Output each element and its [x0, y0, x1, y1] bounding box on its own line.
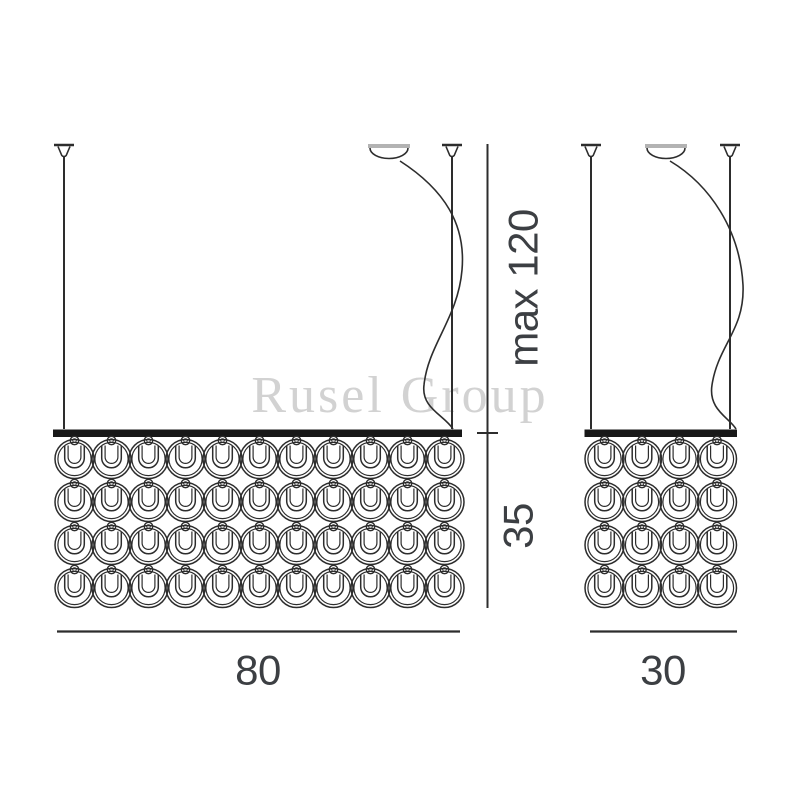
glass-sphere-icon: [55, 522, 94, 564]
glass-sphere-icon: [92, 565, 131, 607]
glass-sphere-icon: [240, 479, 279, 521]
glass-sphere-icon: [698, 565, 737, 607]
ceiling-mount-icon: [442, 145, 462, 157]
glass-sphere-icon: [623, 436, 662, 478]
ceiling-canopy-icon: [368, 146, 410, 159]
fixture-top-bar: [585, 430, 738, 438]
ceiling-mount-icon: [720, 145, 740, 157]
glass-sphere-icon: [660, 436, 699, 478]
glass-sphere-icon: [55, 436, 94, 478]
product-dimension-diagram: Rusel Group: [0, 0, 800, 800]
glass-sphere-icon: [277, 479, 316, 521]
glass-sphere-icon: [203, 522, 242, 564]
glass-sphere-icon: [240, 565, 279, 607]
glass-sphere-icon: [129, 479, 168, 521]
glass-sphere-icon: [129, 436, 168, 478]
glass-sphere-icon: [585, 522, 624, 564]
dimension-label-width-small: 30: [640, 647, 686, 694]
glass-sphere-icon: [351, 565, 390, 607]
glass-sphere-icon: [203, 479, 242, 521]
glass-sphere-icon: [388, 565, 427, 607]
glass-sphere-icon: [585, 479, 624, 521]
glass-sphere-icon: [698, 436, 737, 478]
glass-sphere-icon: [240, 436, 279, 478]
glass-sphere-icon: [425, 522, 464, 564]
glass-sphere-icon: [351, 436, 390, 478]
glass-sphere-icon: [623, 522, 662, 564]
glass-sphere-icon: [585, 565, 624, 607]
glass-sphere-icon: [351, 479, 390, 521]
glass-sphere-icon: [314, 522, 353, 564]
dimension-label-body-height: 35: [495, 503, 542, 549]
glass-sphere-icon: [203, 436, 242, 478]
glass-sphere-icon: [698, 522, 737, 564]
glass-sphere-icon: [277, 436, 316, 478]
ceiling-mount-icon: [54, 145, 74, 157]
glass-sphere-icon: [129, 565, 168, 607]
sphere-grid-small: [585, 436, 737, 607]
glass-sphere-icon: [166, 436, 205, 478]
dimension-diagram-canvas: Rusel Group: [0, 0, 800, 800]
glass-sphere-icon: [129, 522, 168, 564]
glass-sphere-icon: [314, 436, 353, 478]
glass-sphere-icon: [166, 522, 205, 564]
sphere-grid-large: [55, 436, 464, 607]
glass-sphere-icon: [623, 565, 662, 607]
ceiling-canopy-icon: [645, 146, 687, 159]
glass-sphere-icon: [388, 436, 427, 478]
glass-sphere-icon: [55, 565, 94, 607]
glass-sphere-icon: [92, 522, 131, 564]
glass-sphere-icon: [425, 479, 464, 521]
glass-sphere-icon: [277, 565, 316, 607]
watermark-text: Rusel Group: [251, 367, 548, 424]
power-cord: [670, 161, 743, 429]
dimension-label-max-height: max 120: [500, 209, 547, 367]
glass-sphere-icon: [425, 436, 464, 478]
ceiling-mount-icon: [581, 145, 601, 157]
glass-sphere-icon: [166, 479, 205, 521]
glass-sphere-icon: [698, 479, 737, 521]
fixture-top-bar: [53, 430, 462, 438]
glass-sphere-icon: [623, 479, 662, 521]
glass-sphere-icon: [425, 565, 464, 607]
glass-sphere-icon: [388, 479, 427, 521]
glass-sphere-icon: [166, 565, 205, 607]
glass-sphere-icon: [388, 522, 427, 564]
glass-sphere-icon: [660, 479, 699, 521]
glass-sphere-icon: [660, 565, 699, 607]
glass-sphere-icon: [277, 522, 316, 564]
glass-sphere-icon: [240, 522, 279, 564]
fixture-small: [581, 145, 743, 608]
glass-sphere-icon: [351, 522, 390, 564]
dimension-label-width-large: 80: [235, 647, 281, 694]
glass-sphere-icon: [203, 565, 242, 607]
glass-sphere-icon: [314, 565, 353, 607]
glass-sphere-icon: [55, 479, 94, 521]
glass-sphere-icon: [660, 522, 699, 564]
glass-sphere-icon: [92, 479, 131, 521]
glass-sphere-icon: [585, 436, 624, 478]
glass-sphere-icon: [314, 479, 353, 521]
glass-sphere-icon: [92, 436, 131, 478]
